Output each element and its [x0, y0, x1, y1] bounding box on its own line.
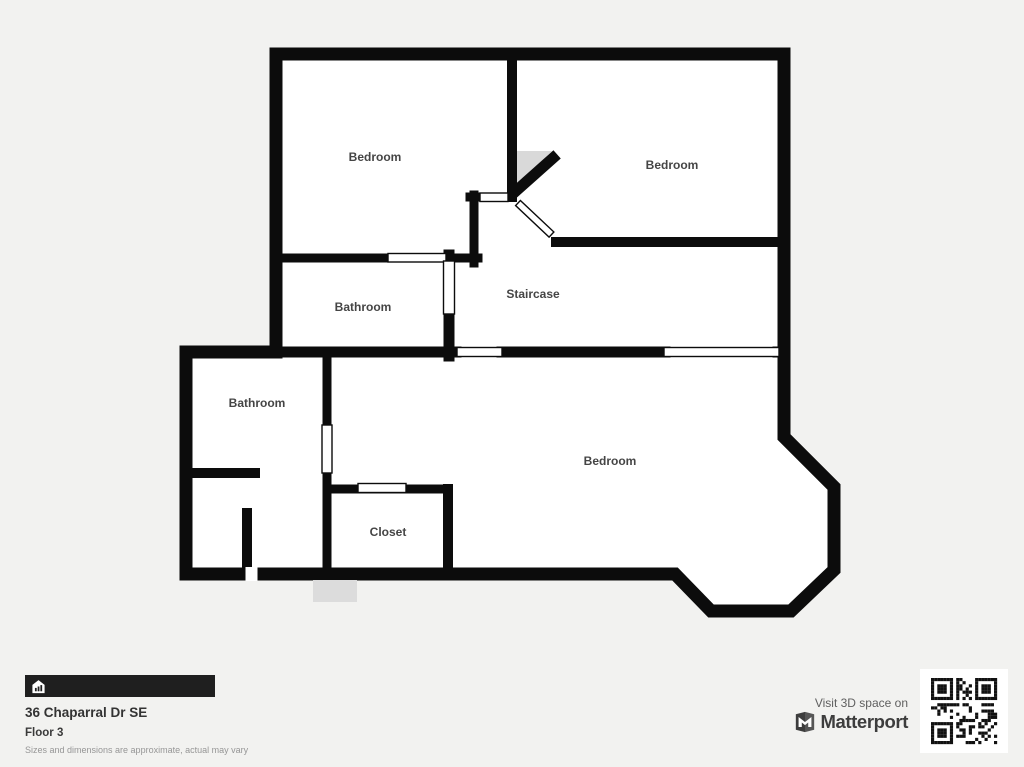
- visit-3d-text: Visit 3D space on: [815, 697, 908, 709]
- matterport-logo-icon: [794, 711, 816, 733]
- property-address: 36 Chaparral Dr SE: [25, 706, 285, 720]
- floor-plan: Bedroom Bedroom Bathroom Staircase Bathr…: [0, 0, 1024, 767]
- home-icon: [31, 679, 46, 694]
- property-info-bar: [25, 675, 215, 697]
- floor-label: Floor 3: [25, 728, 285, 740]
- door-opening: [480, 193, 508, 202]
- room-label-bathroom-upper: Bathroom: [335, 300, 392, 314]
- matterport-brand: Matterport: [794, 711, 908, 733]
- door-opening: [322, 425, 332, 473]
- room-label-bedroom-main: Bedroom: [584, 454, 637, 468]
- room-label-bathroom-lower: Bathroom: [229, 396, 286, 410]
- door-opening: [358, 484, 406, 493]
- door-opening: [444, 261, 455, 314]
- window-opening: [457, 348, 502, 357]
- disclaimer-text: Sizes and dimensions are approximate, ac…: [25, 746, 285, 755]
- entry-shading: [313, 580, 357, 602]
- room-label-bedroom-top-left: Bedroom: [349, 150, 402, 164]
- room-label-closet: Closet: [370, 525, 407, 539]
- door-opening: [388, 254, 446, 263]
- room-label-bedroom-top-right: Bedroom: [646, 158, 699, 172]
- matterport-wordmark: Matterport: [821, 713, 908, 732]
- property-info-block: 36 Chaparral Dr SE Floor 3 Sizes and dim…: [25, 675, 285, 755]
- door-opening: [246, 567, 258, 581]
- qr-code: [920, 669, 1008, 753]
- room-label-staircase: Staircase: [506, 287, 560, 301]
- window-opening: [664, 348, 779, 357]
